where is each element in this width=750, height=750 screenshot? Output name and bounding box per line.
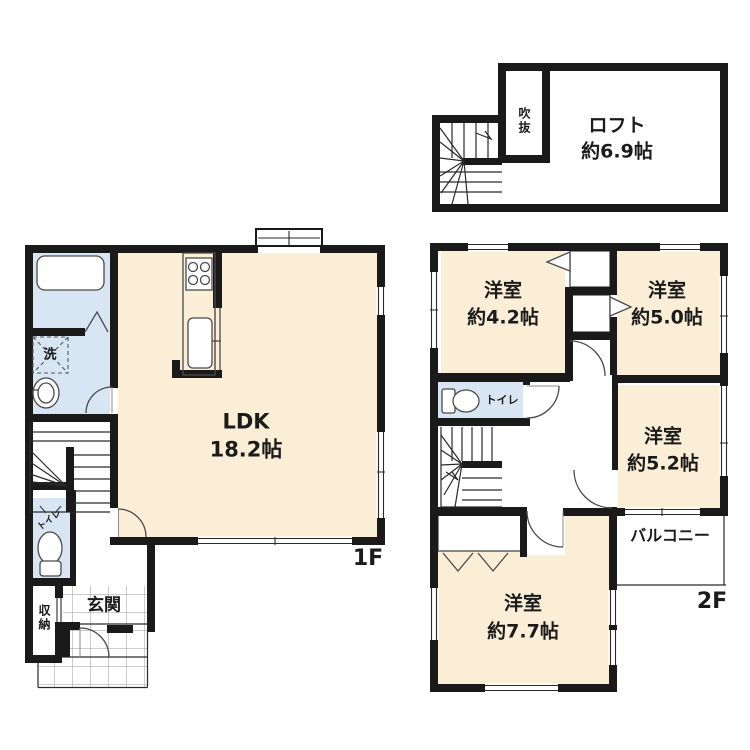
room-5-0-size: 約5.0帖 (631, 309, 703, 328)
room-4-2-size: 約4.2帖 (467, 309, 539, 328)
room-5-0-name: 洋室 (648, 282, 686, 301)
f2-toilet-icon (442, 389, 479, 413)
ldk-name-label: LDK (222, 412, 269, 433)
room-7-7-size: 約7.7帖 (487, 623, 559, 642)
loft-size-label: 約6.9帖 (581, 143, 653, 162)
room-5-2-name: 洋室 (644, 428, 682, 447)
room-5-2-size: 約5.2帖 (627, 455, 699, 474)
void-label: 吹抜 (518, 107, 530, 135)
washbasin-icon (33, 378, 59, 408)
wash-label: 洗 (43, 349, 56, 362)
bathtub-icon (37, 256, 104, 290)
balcony-label: バルコニー (630, 528, 710, 544)
floorplan-drawing (0, 0, 750, 750)
stove-icon (186, 258, 212, 290)
storage-label: 収納 (38, 604, 50, 632)
loft-plan (432, 63, 728, 212)
floor2-tag: 2F (697, 591, 727, 613)
ldk-room (118, 253, 377, 537)
room-4-2-name: 洋室 (484, 282, 522, 301)
first-floor-plan (25, 229, 386, 688)
loft-name-label: ロフト (588, 117, 645, 136)
bay-window (256, 229, 322, 246)
f2-toilet-label: トイレ (486, 395, 519, 406)
room-7-7-name: 洋室 (504, 595, 542, 614)
floor1-tag: 1F (353, 548, 383, 570)
floorplan-canvas: ロフト 約6.9帖 吹抜 LDK 18.2帖 1F 洗 トイレ 玄関 収納 洋室… (0, 0, 750, 750)
entrance-label: 玄関 (87, 598, 121, 615)
ldk-size-label: 18.2帖 (210, 440, 283, 461)
